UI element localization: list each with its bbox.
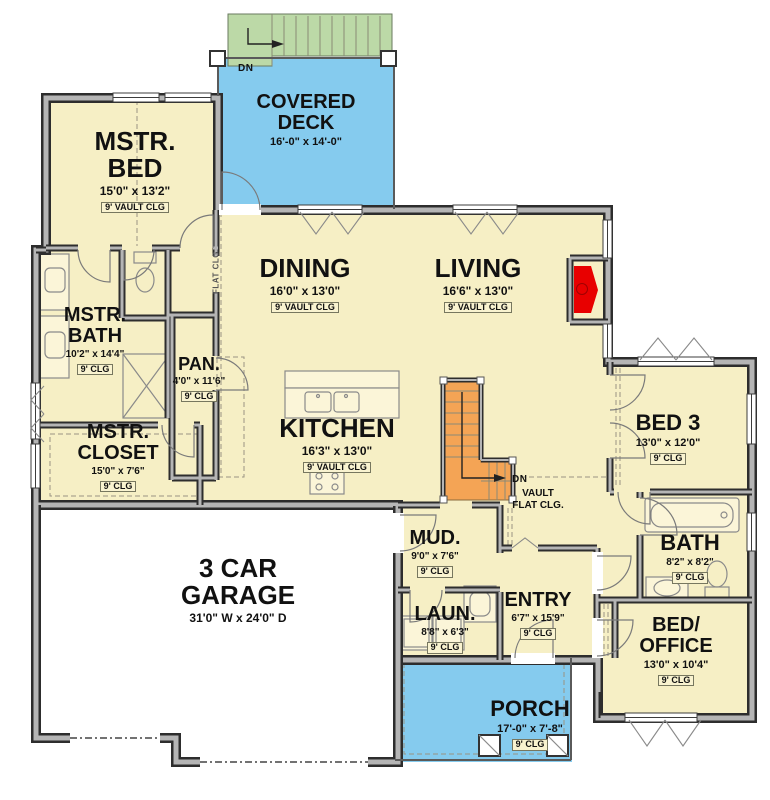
room-name: ENTRY [488,590,588,611]
kitchen-island [285,371,399,418]
room-ceiling-badge: 9' VAULT CLG [444,302,512,313]
room-name: BED/ OFFICE [621,615,731,657]
garage-floor [36,505,398,762]
room-name: MUD. [390,528,480,549]
room-label-mud: MUD. 9'0" x 7'6" 9' CLG [390,528,480,579]
room-label-bath: BATH 8'2" x 8'2" 9' CLG [645,532,735,585]
room-name: MSTR. CLOSET [58,422,178,464]
room-dims: 13'0" x 12'0" [608,438,728,449]
room-name: LAUN. [400,604,490,625]
room-ceiling-badge: 9' CLG [512,739,549,750]
room-label-entry: ENTRY 6'7" x 15'9" 9' CLG [488,590,588,641]
room-dims: 17'-0" x 7'-8" [470,724,590,735]
room-dims: 8'2" x 8'2" [645,558,735,568]
stair-dn-label: DN [512,474,527,485]
floor-plan: COVERED DECK 16'-0" x 14'-0" DN MSTR. BE… [0,0,770,800]
room-label-garage: 3 CAR GARAGE 31'0" W x 24'0" D [178,555,298,625]
room-dims: 8'8" x 6'3" [400,628,490,638]
room-name: MSTR. BED [75,128,195,182]
room-dims: 15'0" x 7'6" [58,467,178,477]
room-ceiling-badge: 9' CLG [417,566,454,577]
room-ceiling-badge: 9' CLG [427,642,464,653]
room-dims: 13'0" x 10'4" [621,660,731,671]
room-name: 3 CAR GARAGE [178,555,298,609]
room-name: BATH [645,532,735,555]
room-ceiling-badge: 9' CLG [77,364,114,375]
room-name: MSTR. BATH [49,305,141,347]
flat-clg-vertical-label: FLAT CLG [212,243,221,303]
flat-clg-label: FLAT CLG. [500,500,576,512]
room-ceiling-badge: 9' VAULT CLG [303,462,371,473]
room-ceiling-badge: 9' CLG [650,453,687,464]
room-label-mstr-bed: MSTR. BED 15'0" x 13'2" 9' VAULT CLG [75,128,195,214]
room-dims: 16'-0" x 14'-0" [251,137,361,148]
room-dims: 31'0" W x 24'0" D [178,612,298,624]
room-label-porch: PORCH 17'-0" x 7'-8" 9' CLG [470,698,590,752]
room-name: PORCH [470,698,590,721]
room-name: PAN. [162,355,236,374]
room-label-covered-deck: COVERED DECK 16'-0" x 14'-0" [251,92,361,148]
room-dims: 4'0" x 11'6" [162,377,236,387]
room-label-pan: PAN. 4'0" x 11'6" 9' CLG [162,355,236,404]
room-name: LIVING [408,255,548,282]
room-label-laun: LAUN. 8'8" x 6'3" 9' CLG [400,604,490,655]
room-label-mstr-closet: MSTR. CLOSET 15'0" x 7'6" 9' CLG [58,422,178,494]
room-name: DINING [235,255,375,282]
room-label-dining: DINING 16'0" x 13'0" 9' VAULT CLG [235,255,375,314]
room-ceiling-badge: 9' CLG [672,572,709,583]
room-name: COVERED DECK [251,92,361,134]
deck-dn-label: DN [238,63,253,74]
room-name: KITCHEN [257,415,417,442]
room-label-bed3: BED 3 13'0" x 12'0" 9' CLG [608,412,728,466]
room-dims: 10'2" x 14'4" [49,350,141,360]
room-label-mstr-bath: MSTR. BATH 10'2" x 14'4" 9' CLG [49,305,141,377]
room-label-kitchen: KITCHEN 16'3" x 13'0" 9' VAULT CLG [257,415,417,474]
room-ceiling-badge: 9' CLG [658,675,695,686]
room-ceiling-badge: 9' CLG [520,628,557,639]
room-dims: 16'3" x 13'0" [257,445,417,457]
room-ceiling-badge: 9' VAULT CLG [271,302,339,313]
room-dims: 16'0" x 13'0" [235,285,375,297]
room-dims: 9'0" x 7'6" [390,552,480,562]
stair-ceiling-note: VAULT FLAT CLG. [500,488,576,512]
room-name: BED 3 [608,412,728,435]
room-ceiling-badge: 9' CLG [100,481,137,492]
vault-label: VAULT [500,488,576,500]
room-dims: 16'6" x 13'0" [408,285,548,297]
room-ceiling-badge: 9' CLG [181,391,218,402]
room-dims: 15'0" x 13'2" [75,185,195,197]
room-ceiling-badge: 9' VAULT CLG [101,202,169,213]
room-label-bed-office: BED/ OFFICE 13'0" x 10'4" 9' CLG [621,615,731,688]
room-label-living: LIVING 16'6" x 13'0" 9' VAULT CLG [408,255,548,314]
room-dims: 6'7" x 15'9" [488,614,588,624]
